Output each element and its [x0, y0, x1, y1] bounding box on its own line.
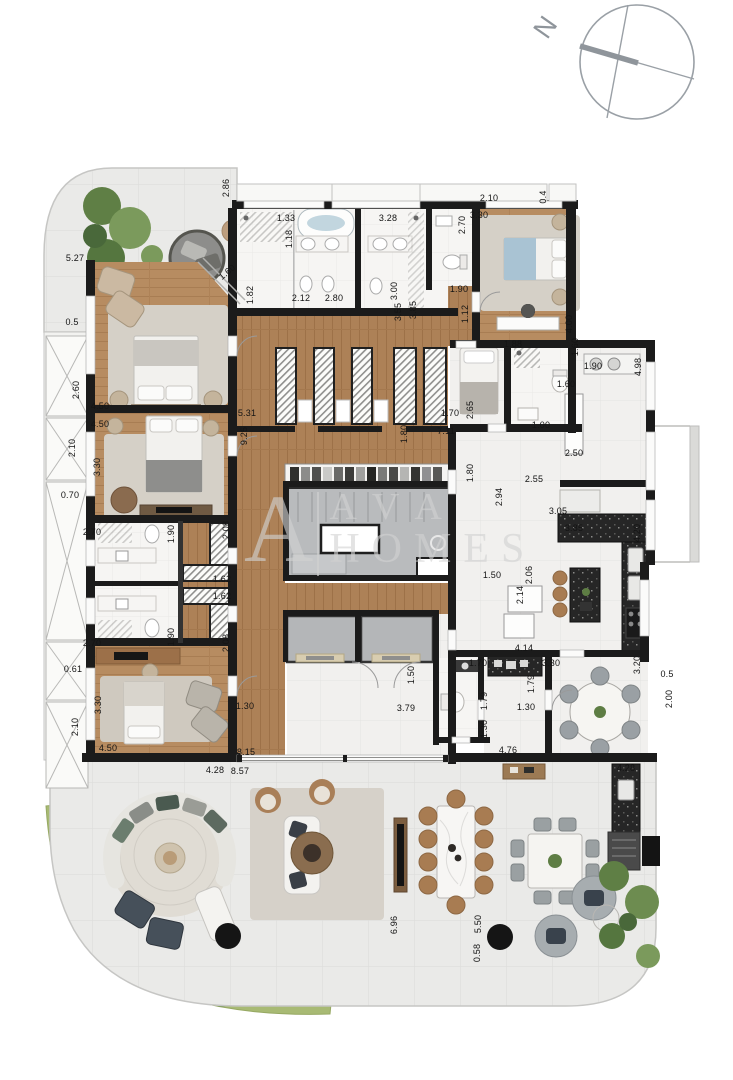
floorplan-canvas: A AVA HOMES N 2.862.100.45.271.331.183.2… — [0, 0, 733, 1080]
coffee-bar — [488, 656, 542, 676]
staff-room-furniture — [460, 348, 498, 414]
stair-core — [287, 487, 451, 579]
compass-north-icon — [580, 5, 694, 119]
floorplan-drawing — [0, 0, 733, 1080]
planter-boxes — [46, 336, 88, 788]
